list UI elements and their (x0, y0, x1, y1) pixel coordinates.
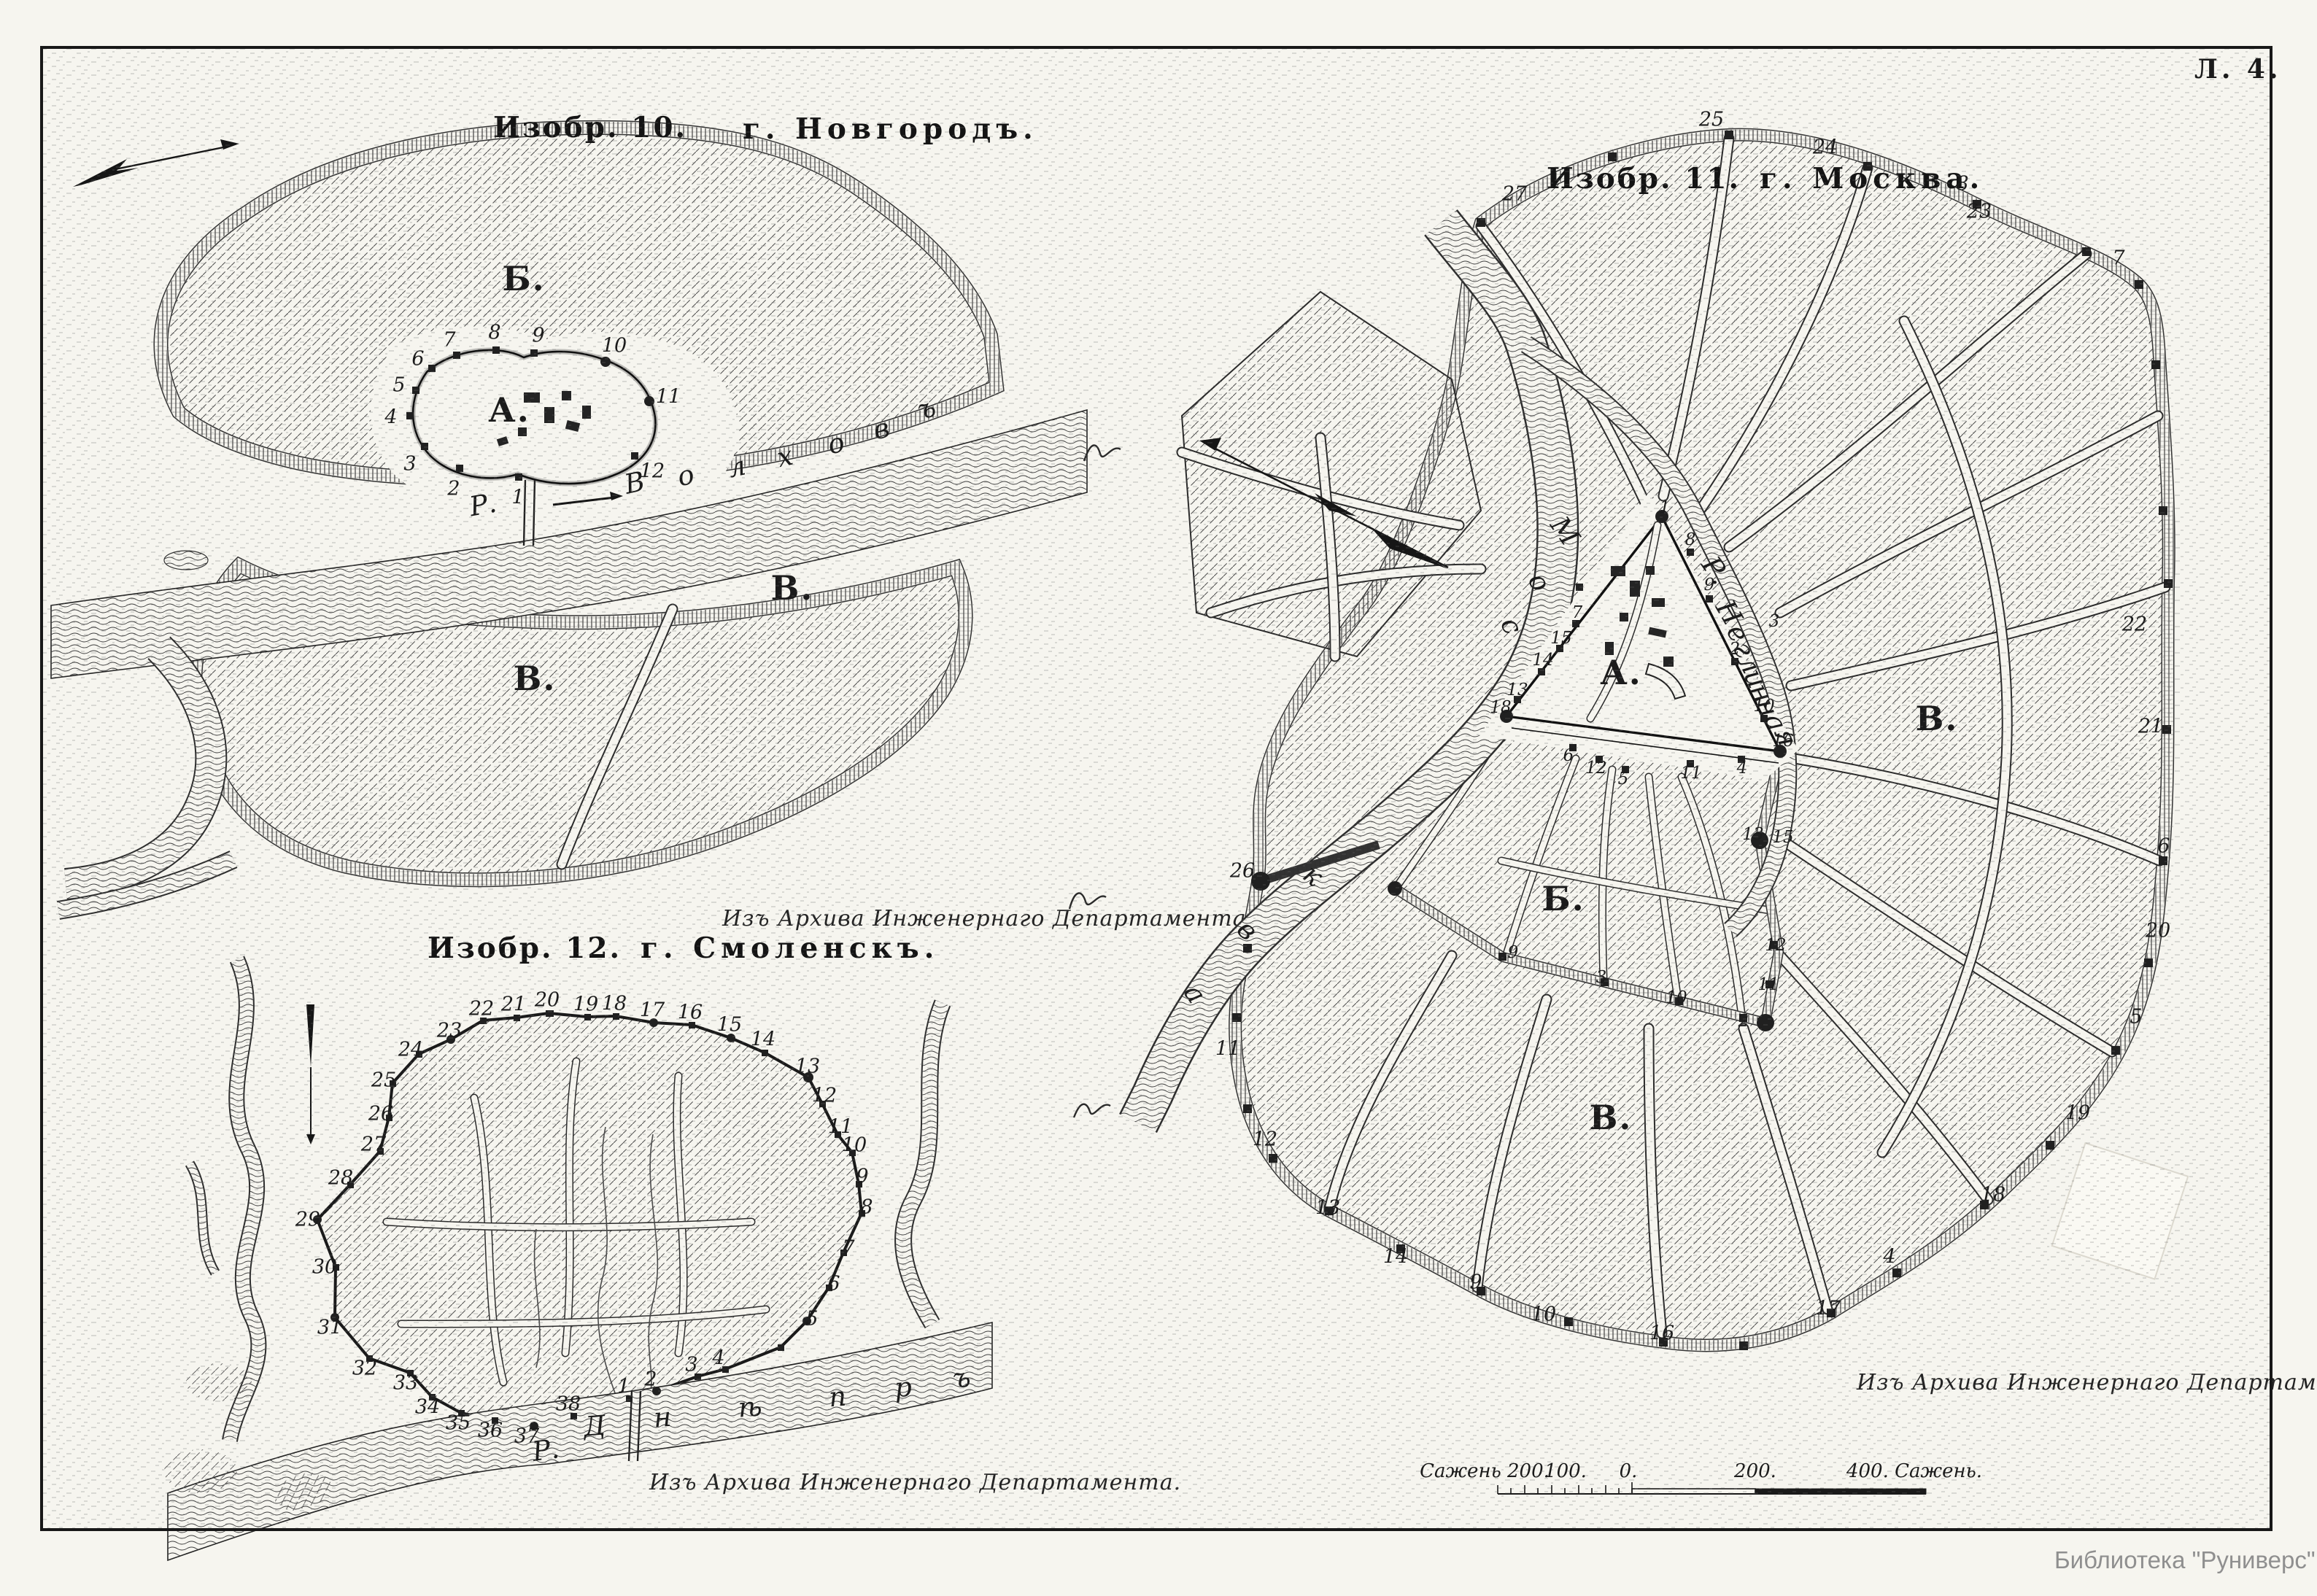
river-name-label: в (870, 412, 893, 446)
tower-number-label: 9 (1508, 943, 1519, 962)
tower-number-label: 34 (415, 1396, 440, 1419)
tower-number-label: 11 (656, 386, 681, 408)
tower-number-label: 27 (1502, 183, 1527, 206)
river-name-label: о (824, 427, 847, 461)
tower-number-label: 37 (514, 1425, 539, 1448)
ink-squiggle (1071, 1096, 1115, 1131)
tower-number-label: 26 (368, 1103, 393, 1126)
tower-number-label: 10 (1753, 697, 1774, 716)
library-watermark: Библиотека "Руниверс" (2054, 1546, 2316, 1574)
tower-number-label: 24 (398, 1039, 423, 1061)
tower-number-label: 27 (361, 1134, 386, 1156)
river-name-label: о (1522, 567, 1557, 597)
tower-number-label: 4 (712, 1347, 724, 1370)
tower-number-label: 33 (393, 1372, 418, 1395)
district-letter-label: В. (1916, 699, 1959, 738)
river-name-label: Р. (1695, 551, 1736, 591)
river-name-label: п (828, 1381, 848, 1414)
tower-number-label: 38 (556, 1393, 581, 1416)
district-letter-label: В. (1590, 1098, 1633, 1137)
river-name-label: ъ (914, 391, 939, 425)
river-name-label: н (652, 1401, 672, 1434)
tower-number-label: 18 (602, 993, 627, 1015)
tower-number-label: 9 (1704, 576, 1715, 594)
river-name-label: л (725, 450, 749, 484)
tower-number-label: 21 (2138, 716, 2163, 738)
tower-number-label: 4 (1883, 1246, 1895, 1268)
ink-squiggle (1081, 438, 1125, 473)
tower-number-label: 5 (805, 1308, 818, 1330)
tower-number-label: 6 (411, 348, 424, 371)
tower-number-label: 24 (1813, 136, 1838, 159)
tower-number-label: 3 (403, 453, 416, 476)
river-name-label: а (1177, 978, 1212, 1010)
tower-number-label: 6 (2157, 835, 2170, 858)
sheet-number: Л. 4. (2194, 54, 2281, 85)
district-letter-label: А. (488, 390, 530, 430)
tower-number-label: 9 (532, 325, 544, 347)
tower-number-label: 1 (1660, 498, 1671, 517)
tower-number-label: 13 (1315, 1197, 1340, 1220)
tower-number-label: 16 (1772, 732, 1793, 751)
tower-number-label: 11 (1215, 1038, 1240, 1061)
tower-number-label: 11 (828, 1116, 853, 1139)
tower-number-label: 9 (856, 1166, 868, 1188)
tower-number-label: 12 (1585, 759, 1606, 778)
tower-number-label: 11 (1757, 975, 1779, 994)
tower-number-label: 3 (1596, 968, 1607, 987)
tower-number-label: 5 (2130, 1006, 2142, 1029)
scanned-map-plate: Изобр. 10. г. Новгородъ. Изъ Архива Инже… (0, 0, 2317, 1596)
tower-number-label: 15 (1772, 828, 1793, 847)
tower-number-label: 13 (795, 1055, 820, 1078)
tower-number-label: 21 (501, 993, 526, 1016)
tower-number-label: 15 (717, 1014, 742, 1037)
tower-number-label: 19 (573, 993, 598, 1016)
tower-number-label: 3 (685, 1354, 697, 1376)
river-name-label: ъ (951, 1362, 972, 1395)
tower-number-label: 12 (1765, 936, 1786, 955)
tower-number-label: 16 (1649, 1322, 1674, 1345)
tower-number-label: 4 (384, 406, 397, 429)
map-novgorod: Изобр. 10. г. Новгородъ. Изъ Архива Инже… (51, 95, 1087, 948)
river-name-label: х (774, 440, 795, 473)
tower-number-label: 10 (1666, 988, 1687, 1007)
tower-number-label: 7 (842, 1237, 854, 1260)
river-name-label: Д (582, 1409, 607, 1442)
tower-number-label: 12 (812, 1085, 837, 1107)
tower-number-label: 2 (1738, 1012, 1749, 1031)
tower-number-label: 12 (640, 460, 665, 483)
tower-number-label: 14 (751, 1029, 775, 1051)
tower-number-label: 15 (1550, 629, 1571, 648)
map-smolensk: Изобр. 12. г. Смоленскъ. Изъ Архива Инже… (168, 915, 992, 1528)
tower-number-label: 30 (312, 1256, 337, 1279)
tower-number-label: 8 (488, 322, 500, 344)
tower-number-label: 18 (1490, 698, 1511, 717)
novgorod-labels: Б.А.В.В.Р.Волховъ123456789101112 (51, 95, 1087, 948)
tower-number-label: 1 (511, 487, 524, 509)
tower-number-label: 16 (678, 1002, 703, 1024)
tower-number-label: 10 (1531, 1303, 1556, 1326)
tower-number-label: 7 (443, 329, 455, 352)
smolensk-labels: Р.Днѣпръ12345678910111213141516171819202… (168, 915, 992, 1528)
tower-number-label: 10 (602, 335, 627, 357)
tower-number-label: 20 (2146, 920, 2170, 942)
tower-number-label: 17 (640, 999, 665, 1022)
tower-number-label: 2 (1730, 640, 1741, 659)
tower-number-label: 29 (295, 1209, 320, 1231)
tower-number-label: 18 (1981, 1184, 2005, 1206)
tower-number-label: 7 (1572, 603, 1583, 622)
tower-number-label: 3 (1769, 612, 1780, 631)
district-letter-label: Б. (1542, 879, 1585, 918)
tower-number-label: 32 (352, 1357, 377, 1380)
tower-number-label: 2 (644, 1368, 657, 1391)
tower-number-label: 4 (1737, 759, 1748, 778)
river-name-label: в (1231, 913, 1264, 947)
tower-number-label: 9 (1469, 1271, 1482, 1294)
tower-number-label: 8 (1685, 530, 1696, 549)
tower-number-label: 2 (447, 478, 460, 500)
river-name-label: р (894, 1371, 913, 1404)
river-name-label: с (1494, 613, 1529, 640)
ink-squiggle (1067, 884, 1110, 919)
river-name-label: о (675, 459, 697, 493)
tower-number-label: 13 (1506, 681, 1528, 700)
tower-number-label: 25 (371, 1069, 396, 1092)
tower-number-label: 22 (2122, 613, 2147, 636)
tower-number-label: 20 (535, 989, 560, 1012)
tower-number-label: 1 (617, 1376, 630, 1398)
river-name-label: ѣ (737, 1390, 763, 1423)
tower-number-label: 14 (1532, 651, 1553, 670)
tower-number-label: 31 (317, 1317, 342, 1339)
tower-number-label: 19 (2065, 1102, 2090, 1125)
river-name-label: М (1544, 511, 1586, 551)
district-letter-label: А. (1600, 653, 1641, 692)
tower-number-label: 23 (1967, 201, 1992, 223)
district-letter-label: В. (771, 568, 814, 608)
tower-number-label: 35 (446, 1412, 471, 1435)
tower-number-label: 13 (1742, 825, 1763, 844)
tower-number-label: 26 (1230, 860, 1255, 883)
district-letter-label: Б. (502, 259, 545, 298)
tower-number-label: 28 (328, 1167, 353, 1190)
tower-number-label: 36 (478, 1419, 503, 1442)
map-moscow: Изобр. 11. г. Москва. Изъ Архива Инженер… (1138, 102, 2283, 1510)
tower-number-label: 7 (2112, 247, 2124, 270)
tower-number-label: 23 (437, 1020, 462, 1042)
district-letter-label: В. (514, 659, 557, 698)
tower-number-label: 22 (469, 998, 494, 1020)
tower-number-label: 5 (1618, 770, 1629, 789)
river-name-label: к (1297, 858, 1329, 892)
tower-number-label: 11 (1680, 764, 1701, 783)
river-name-label: Р. (467, 487, 499, 523)
tower-number-label: 12 (1253, 1128, 1277, 1151)
tower-number-label: 14 (1383, 1246, 1408, 1268)
tower-number-label: 17 (1816, 1298, 1841, 1320)
tower-number-label: 25 (1699, 109, 1724, 131)
moscow-labels: А.Б.В.В.МоскваР.Неглинная272524823722216… (1138, 102, 2283, 1510)
tower-number-label: 8 (860, 1196, 873, 1219)
tower-number-label: 6 (827, 1273, 840, 1295)
tower-number-label: 6 (1563, 746, 1574, 765)
tower-number-label: 5 (392, 374, 405, 397)
tower-number-label: 8 (1956, 173, 1968, 195)
